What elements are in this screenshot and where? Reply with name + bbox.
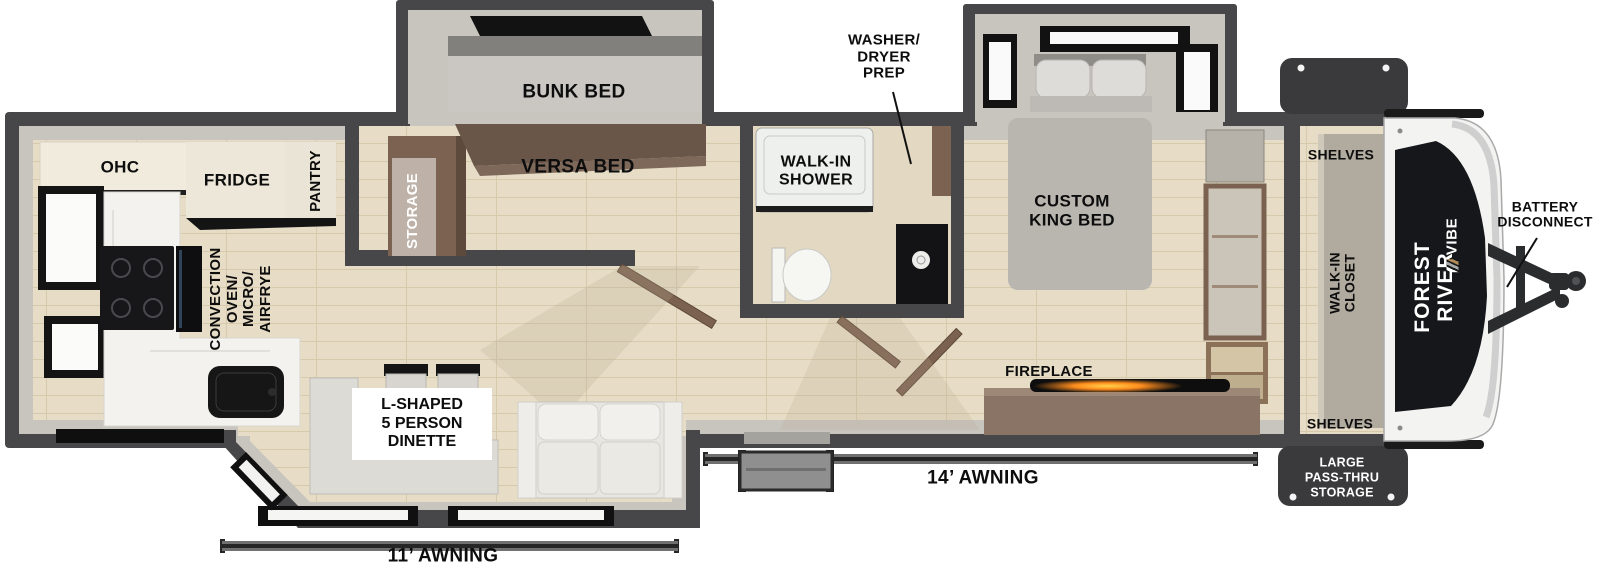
dinette-window-right <box>448 506 614 526</box>
label-versa-bed: VERSA BED <box>521 158 635 179</box>
rear-window-lower <box>44 316 106 378</box>
label-fridge: FRIDGE <box>204 172 270 191</box>
rear-window-upper <box>38 186 104 290</box>
label-convection-oven: CONVECTION OVEN/ MICRO/ AIRFRYE <box>208 247 274 350</box>
brand-vibe-logo: VIBE <box>1444 218 1461 272</box>
king-pillow-right <box>1092 60 1146 98</box>
label-pantry: PANTRY <box>308 150 325 212</box>
label-washer-dryer-prep: WASHER/ DRYER PREP <box>848 32 920 82</box>
convection-oven <box>176 246 202 332</box>
king-slideout <box>963 4 1237 124</box>
washer-dryer-cabinet <box>932 126 951 196</box>
stove <box>100 246 174 330</box>
fireplace-flame <box>1033 379 1183 393</box>
storage-cabinet <box>388 136 466 256</box>
label-ohc: OHC <box>101 159 140 178</box>
label-pass-thru-storage: LARGE PASS-THRU STORAGE <box>1305 456 1379 501</box>
label-storage: STORAGE <box>405 173 422 249</box>
kitchen-wall-window <box>56 429 224 443</box>
toilet <box>772 248 831 302</box>
label-shelves-top: SHELVES <box>1308 147 1374 162</box>
king-window-right <box>1176 44 1218 118</box>
bedroom-cabinet <box>1206 130 1264 182</box>
label-battery-disconnect: BATTERY DISCONNECT <box>1497 200 1592 231</box>
label-walk-in-closet: WALK-IN CLOSET <box>1328 252 1359 314</box>
dinette-window-left <box>258 506 418 526</box>
brand-vibe-text: VIBE <box>1444 218 1461 255</box>
label-fireplace: FIREPLACE <box>1005 364 1093 381</box>
vibe-stripes-icon <box>1446 259 1458 272</box>
wardrobe <box>1206 186 1264 338</box>
bathroom-vanity <box>896 224 948 304</box>
king-window-top <box>1040 26 1190 52</box>
label-shelves-bottom: SHELVES <box>1307 416 1373 431</box>
king-window-left <box>983 34 1017 108</box>
sofa <box>518 402 682 498</box>
kitchen-sink <box>208 366 284 418</box>
label-bunk-bed: BUNK BED <box>522 83 625 104</box>
label-walk-in-shower: WALK-IN SHOWER <box>779 153 853 188</box>
king-pillow-left <box>1036 60 1090 98</box>
label-awning-14: 14’ AWNING <box>927 469 1039 490</box>
floorplan-canvas: OHC FRIDGE PANTRY CONVECTION OVEN/ MICRO… <box>0 0 1600 572</box>
entry-step <box>738 432 834 492</box>
label-dinette: L-SHAPED 5 PERSON DINETTE <box>352 388 492 460</box>
front-storage-box-top <box>1280 58 1408 114</box>
label-awning-11: 11’ AWNING <box>388 547 499 568</box>
label-custom-king-bed: CUSTOM KING BED <box>1029 192 1115 229</box>
bunk-slideout <box>396 0 714 124</box>
